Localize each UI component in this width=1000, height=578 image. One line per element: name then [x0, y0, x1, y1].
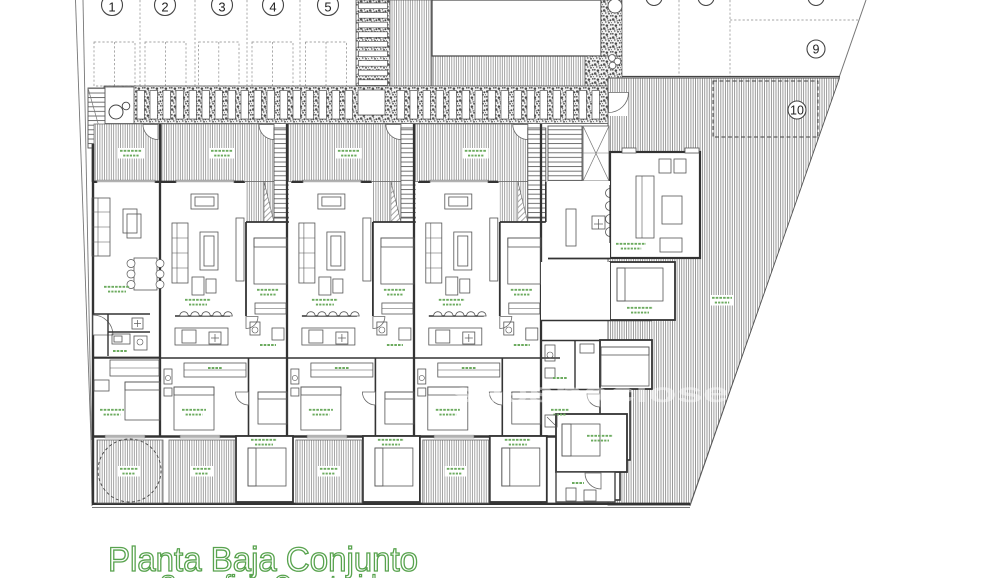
svg-text:5: 5 [324, 0, 331, 15]
svg-text:2: 2 [161, 0, 168, 15]
svg-text:Superficie Construida: Superficie Construida [160, 570, 391, 578]
svg-text:9: 9 [813, 43, 820, 57]
svg-text:4: 4 [269, 0, 276, 15]
svg-text:1: 1 [108, 0, 115, 15]
svg-text:3: 3 [218, 0, 225, 15]
svg-text:seespacioseplanos: seespacioseplanos [450, 377, 880, 408]
svg-text:10: 10 [790, 104, 804, 118]
